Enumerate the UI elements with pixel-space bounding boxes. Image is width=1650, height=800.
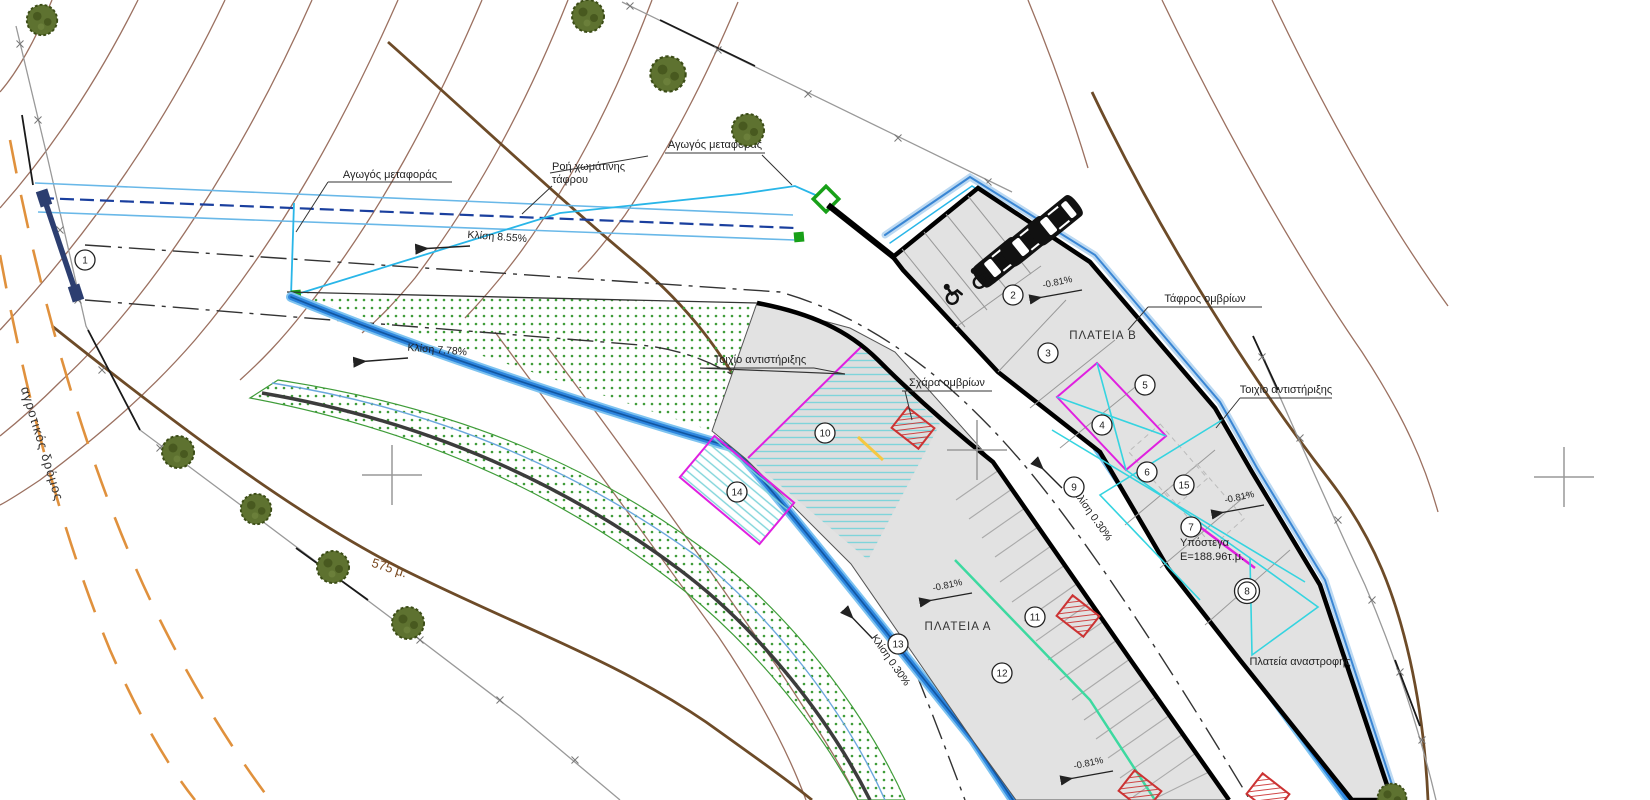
tree-icon — [162, 436, 194, 468]
marker-12-text: 12 — [996, 669, 1008, 680]
marker-12: 12 — [992, 663, 1012, 683]
tree-icon — [572, 0, 604, 32]
ditch-flow-lines — [291, 186, 820, 296]
marker-15: 15 — [1174, 475, 1194, 495]
marker-14: 14 — [727, 482, 747, 502]
tree-icon — [650, 56, 685, 91]
tree-icon — [732, 114, 764, 146]
marker-8: 8 — [1235, 579, 1260, 604]
node-marker — [794, 232, 805, 243]
retaining-wall-right-label: Τοιχίο αντιστήριξης — [1240, 384, 1332, 396]
rural-road-label: αγροτικός δρόμος — [18, 385, 67, 503]
marker-14-text: 14 — [731, 488, 743, 499]
retaining-wall-left-label: Τοιχίο αντιστήριξης — [714, 354, 806, 366]
site-plan-drawing: 575 μ. αγροτικός δρόμος — [0, 0, 1650, 800]
marker-5: 5 — [1135, 375, 1155, 395]
rural-road-edges — [0, 140, 270, 800]
marker-3-text: 3 — [1045, 349, 1051, 360]
marker-4: 4 — [1092, 415, 1112, 435]
marker-9-text: 9 — [1071, 483, 1077, 494]
tree-icon — [392, 607, 424, 639]
marker-10: 10 — [815, 423, 835, 443]
marker-7-text: 7 — [1188, 523, 1194, 534]
survey-markers — [291, 186, 839, 300]
square-b-label: ΠΛΑΤΕΙΑ Β — [1069, 330, 1137, 342]
marker-3: 3 — [1038, 343, 1058, 363]
marker-1: 1 — [75, 250, 95, 270]
marker-15-text: 15 — [1178, 481, 1190, 492]
marker-2-text: 2 — [1010, 291, 1016, 302]
culvert-endpoint — [36, 189, 52, 208]
pipe-left-label: Αγωγός μεταφοράς — [343, 169, 437, 181]
tree-icon — [27, 5, 57, 35]
marker-13: 13 — [888, 634, 908, 654]
storm-grate-icon — [1247, 773, 1290, 800]
contour-elevation-text: 575 μ. — [370, 555, 409, 581]
contour-elevation-label: 575 μ. — [370, 555, 409, 581]
rural-road-text: αγροτικός δρόμος — [18, 385, 67, 503]
marker-6: 6 — [1137, 462, 1157, 482]
shelter-area-label: Ε=188.96τ.μ. — [1180, 551, 1244, 563]
square-a-label: ΠΛΑΤΕΙΑ Α — [925, 621, 992, 633]
marker-11-text: 11 — [1030, 613, 1041, 624]
marker-10-text: 10 — [819, 429, 831, 440]
tree-icon — [317, 551, 349, 583]
marker-1-text: 1 — [82, 256, 88, 267]
site-plan-canvas: 575 μ. αγροτικός δρόμος — [0, 0, 1650, 800]
marker-2: 2 — [1003, 285, 1023, 305]
marker-4-text: 4 — [1099, 421, 1105, 432]
ditch-flow-label-2: τάφρου — [552, 174, 588, 186]
storm-grate-label: Σχάρα ομβρίων — [909, 377, 985, 389]
marker-7: 7 — [1181, 517, 1201, 537]
marker-6-text: 6 — [1144, 468, 1150, 479]
marker-9: 9 — [1064, 477, 1084, 497]
slope-855-label: Κλίση 8.55% — [467, 229, 527, 245]
culvert-endpoint — [68, 284, 84, 303]
marker-8-text: 8 — [1244, 587, 1250, 598]
turning-square-label: Πλατεία αναστροφής — [1249, 656, 1350, 668]
marker-11: 11 — [1025, 607, 1045, 627]
marker-13-text: 13 — [892, 640, 904, 651]
marker-5-text: 5 — [1142, 381, 1148, 392]
storm-ditch-label: Τάφρος ομβρίων — [1164, 293, 1246, 305]
shelter-label: Υπόστεγα — [1180, 537, 1230, 549]
tree-icon — [241, 494, 271, 524]
